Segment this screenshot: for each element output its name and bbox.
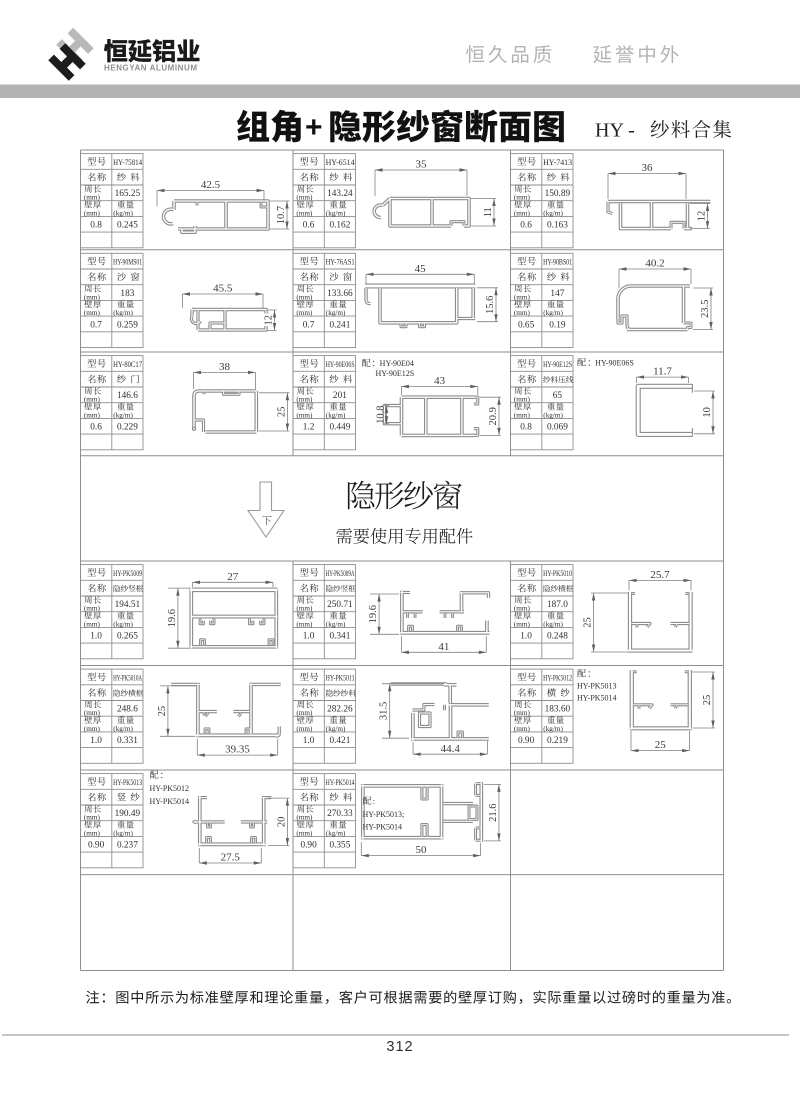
svg-text:0.65: 0.65	[518, 320, 535, 330]
svg-text:HY-PK5009A: HY-PK5009A	[326, 569, 355, 578]
svg-text:(mm): (mm)	[296, 605, 313, 613]
svg-text:(mm): (mm)	[84, 814, 101, 822]
svg-text:31.5: 31.5	[379, 702, 390, 720]
svg-text:0.069: 0.069	[547, 423, 568, 433]
svg-text:(kg/m): (kg/m)	[113, 725, 133, 733]
svg-text:0.265: 0.265	[117, 632, 138, 642]
svg-text:(kg/m): (kg/m)	[113, 620, 133, 628]
svg-text:146.6: 146.6	[117, 391, 138, 401]
svg-text:HY-PK5014: HY-PK5014	[326, 778, 356, 787]
svg-text:(mm): (mm)	[84, 194, 101, 202]
svg-text:1.0: 1.0	[90, 736, 102, 746]
svg-text:(mm): (mm)	[296, 709, 313, 717]
svg-text:HY-PK5014: HY-PK5014	[150, 797, 190, 806]
svg-text:HY-90MS01: HY-90MS01	[113, 258, 142, 267]
svg-text:HY-90E06S: HY-90E06S	[326, 360, 355, 369]
svg-text:(mm): (mm)	[514, 709, 531, 717]
svg-text:(mm): (mm)	[84, 309, 101, 317]
svg-text:23.5: 23.5	[700, 300, 711, 318]
svg-text:HY-PK5010A: HY-PK5010A	[113, 673, 142, 682]
svg-text:10.7: 10.7	[276, 206, 287, 224]
svg-text:(mm): (mm)	[84, 605, 101, 613]
svg-text:HY-90E12S: HY-90E12S	[376, 369, 415, 378]
svg-text:150.89: 150.89	[545, 189, 571, 199]
svg-text:(kg/m): (kg/m)	[113, 411, 133, 419]
svg-text:35: 35	[416, 159, 428, 171]
svg-text:25: 25	[276, 407, 287, 418]
svg-text:HY-6514: HY-6514	[326, 158, 356, 167]
svg-text:190.49: 190.49	[115, 809, 141, 819]
svg-text:0.8: 0.8	[90, 221, 102, 231]
svg-text:(kg/m): (kg/m)	[543, 411, 563, 419]
svg-text:165.25: 165.25	[115, 189, 141, 199]
svg-text:0.241: 0.241	[329, 320, 350, 330]
svg-text:41: 41	[438, 641, 449, 653]
svg-text:(mm): (mm)	[514, 725, 531, 733]
svg-text:(kg/m): (kg/m)	[326, 209, 346, 217]
svg-text:0.248: 0.248	[547, 632, 568, 642]
svg-text:0.19: 0.19	[549, 320, 566, 330]
svg-text:(mm): (mm)	[514, 209, 531, 217]
svg-text:12: 12	[264, 315, 275, 326]
svg-text:HY-PK5012: HY-PK5012	[543, 673, 572, 682]
svg-text:(kg/m): (kg/m)	[326, 829, 346, 837]
svg-text:(mm): (mm)	[84, 829, 101, 837]
svg-text:(kg/m): (kg/m)	[326, 309, 346, 317]
svg-text:(mm): (mm)	[84, 620, 101, 628]
svg-text:0.6: 0.6	[520, 221, 532, 231]
svg-text:1.0: 1.0	[303, 632, 315, 642]
svg-text:12: 12	[697, 211, 708, 222]
svg-text:HY-90E12S: HY-90E12S	[543, 360, 572, 369]
svg-text:HY-PK5014: HY-PK5014	[577, 694, 617, 703]
svg-text:(mm): (mm)	[296, 293, 313, 301]
svg-text:HY-PK5013;: HY-PK5013;	[363, 810, 405, 819]
svg-text:+: +	[305, 111, 323, 144]
svg-text:(mm): (mm)	[84, 411, 101, 419]
svg-text:0.341: 0.341	[329, 632, 350, 642]
svg-text:(mm): (mm)	[514, 605, 531, 613]
svg-text:25: 25	[655, 739, 667, 751]
svg-text:(kg/m): (kg/m)	[543, 309, 563, 317]
svg-text:(mm): (mm)	[296, 309, 313, 317]
svg-text:43: 43	[434, 375, 446, 387]
svg-text:HY-80C17: HY-80C17	[113, 360, 142, 369]
svg-text:0.6: 0.6	[90, 423, 102, 433]
svg-text:(kg/m): (kg/m)	[543, 209, 563, 217]
svg-text:(mm): (mm)	[296, 620, 313, 628]
svg-text:45.5: 45.5	[213, 283, 233, 295]
svg-text:HY-PK5011: HY-PK5011	[326, 673, 355, 682]
svg-text:：HY-90E04: ：HY-90E04	[372, 359, 414, 368]
svg-text:19.6: 19.6	[368, 605, 379, 623]
svg-text:1.0: 1.0	[303, 736, 315, 746]
svg-text:HY-PK5014: HY-PK5014	[363, 823, 403, 832]
svg-text:270.33: 270.33	[327, 809, 353, 819]
svg-text:：HY-90E06S: ：HY-90E06S	[587, 359, 634, 368]
svg-text:(mm): (mm)	[296, 396, 313, 404]
svg-text:147: 147	[550, 289, 564, 299]
svg-text:(kg/m): (kg/m)	[113, 209, 133, 217]
svg-text:HY-PK5012: HY-PK5012	[150, 784, 190, 793]
svg-text:0.6: 0.6	[303, 221, 315, 231]
svg-text:(kg/m): (kg/m)	[113, 309, 133, 317]
svg-text:(mm): (mm)	[84, 209, 101, 217]
svg-text:183: 183	[120, 289, 134, 299]
svg-text:11.7: 11.7	[653, 366, 672, 378]
svg-text:：: ：	[160, 771, 168, 780]
svg-text:38: 38	[219, 361, 231, 373]
svg-text:：: ：	[587, 670, 595, 679]
svg-text:(mm): (mm)	[84, 725, 101, 733]
svg-text:25: 25	[583, 617, 594, 628]
svg-text:282.26: 282.26	[327, 705, 353, 715]
svg-text:21.6: 21.6	[488, 803, 499, 821]
svg-text:HY -: HY -	[595, 120, 635, 142]
svg-text:248.6: 248.6	[117, 705, 138, 715]
svg-text:312: 312	[386, 1039, 413, 1055]
svg-text:HY-PK5010: HY-PK5010	[543, 569, 572, 578]
svg-text:HENGYAN ALUMINUM: HENGYAN ALUMINUM	[104, 64, 198, 73]
svg-text:(mm): (mm)	[84, 396, 101, 404]
svg-text:HY-PK5013: HY-PK5013	[113, 778, 142, 787]
svg-text:0.229: 0.229	[117, 423, 138, 433]
svg-text:0.90: 0.90	[518, 736, 535, 746]
svg-text:201: 201	[333, 391, 347, 401]
svg-text:11: 11	[483, 207, 494, 217]
svg-text:(mm): (mm)	[514, 620, 531, 628]
svg-text:19.6: 19.6	[167, 609, 178, 627]
svg-text:27: 27	[227, 571, 239, 583]
svg-text:36: 36	[642, 162, 654, 174]
svg-text:0.90: 0.90	[88, 841, 105, 851]
svg-text:(mm): (mm)	[296, 829, 313, 837]
svg-text:(mm): (mm)	[514, 411, 531, 419]
svg-text:20: 20	[276, 817, 287, 828]
svg-text:0.237: 0.237	[117, 841, 138, 851]
svg-text:HY-75814: HY-75814	[113, 158, 143, 167]
svg-text:0.355: 0.355	[329, 841, 350, 851]
svg-text:0.90: 0.90	[300, 841, 317, 851]
svg-text:183.60: 183.60	[545, 705, 571, 715]
svg-text:187.0: 187.0	[547, 600, 568, 610]
svg-text::: :	[373, 797, 375, 806]
svg-text:133.66: 133.66	[327, 289, 353, 299]
svg-text:0.163: 0.163	[547, 221, 568, 231]
svg-text:(kg/m): (kg/m)	[113, 829, 133, 837]
svg-text:(mm): (mm)	[514, 396, 531, 404]
svg-text:HY-7413: HY-7413	[543, 158, 572, 167]
svg-text:(mm): (mm)	[84, 293, 101, 301]
svg-text:(mm): (mm)	[296, 194, 313, 202]
svg-text:42.5: 42.5	[201, 179, 221, 191]
svg-text:0.259: 0.259	[117, 320, 138, 330]
svg-text:(mm): (mm)	[296, 411, 313, 419]
svg-text:(mm): (mm)	[514, 293, 531, 301]
svg-text:(mm): (mm)	[296, 725, 313, 733]
svg-text:50: 50	[416, 844, 428, 856]
svg-text:(kg/m): (kg/m)	[543, 620, 563, 628]
svg-text:(mm): (mm)	[296, 814, 313, 822]
svg-text:(mm): (mm)	[514, 309, 531, 317]
svg-text:(mm): (mm)	[296, 209, 313, 217]
svg-text:0.162: 0.162	[329, 221, 350, 231]
svg-text:25: 25	[702, 695, 713, 706]
svg-text:0.331: 0.331	[117, 736, 138, 746]
svg-text:1.0: 1.0	[520, 632, 532, 642]
svg-text:0.421: 0.421	[329, 736, 350, 746]
svg-text:39.35: 39.35	[225, 744, 250, 756]
svg-text:194.51: 194.51	[115, 600, 141, 610]
svg-text:65: 65	[553, 391, 563, 401]
svg-text:HY-76AS1: HY-76AS1	[326, 258, 355, 267]
svg-text:25.7: 25.7	[650, 569, 670, 581]
svg-text:0.449: 0.449	[329, 423, 350, 433]
svg-text:143.24: 143.24	[327, 189, 353, 199]
svg-text:(mm): (mm)	[84, 709, 101, 717]
svg-text:10.8: 10.8	[376, 405, 387, 423]
svg-text:(kg/m): (kg/m)	[543, 725, 563, 733]
svg-text:44.4: 44.4	[441, 743, 461, 755]
svg-text:(kg/m): (kg/m)	[326, 620, 346, 628]
svg-text:25: 25	[157, 706, 168, 717]
svg-text:HY-PK5009: HY-PK5009	[113, 569, 142, 578]
svg-text:27.5: 27.5	[221, 852, 241, 864]
svg-text:1.2: 1.2	[303, 423, 315, 433]
svg-text:10: 10	[702, 407, 713, 418]
svg-text:(kg/m): (kg/m)	[326, 411, 346, 419]
svg-text:20.9: 20.9	[488, 407, 499, 425]
svg-text:0.7: 0.7	[90, 320, 102, 330]
svg-text:0.7: 0.7	[303, 320, 315, 330]
svg-text:0.245: 0.245	[117, 221, 138, 231]
svg-text:40.2: 40.2	[645, 258, 664, 270]
svg-text:(mm): (mm)	[514, 194, 531, 202]
svg-text:0.219: 0.219	[547, 736, 568, 746]
svg-text:0.8: 0.8	[520, 423, 532, 433]
svg-text:45: 45	[415, 263, 427, 275]
svg-text:15.6: 15.6	[485, 296, 496, 314]
svg-text:(kg/m): (kg/m)	[326, 725, 346, 733]
svg-text:HY-90BS01: HY-90BS01	[543, 258, 572, 267]
svg-text:HY-PK5013: HY-PK5013	[577, 682, 617, 691]
svg-text:1.0: 1.0	[90, 632, 102, 642]
svg-text:250.71: 250.71	[327, 600, 353, 610]
